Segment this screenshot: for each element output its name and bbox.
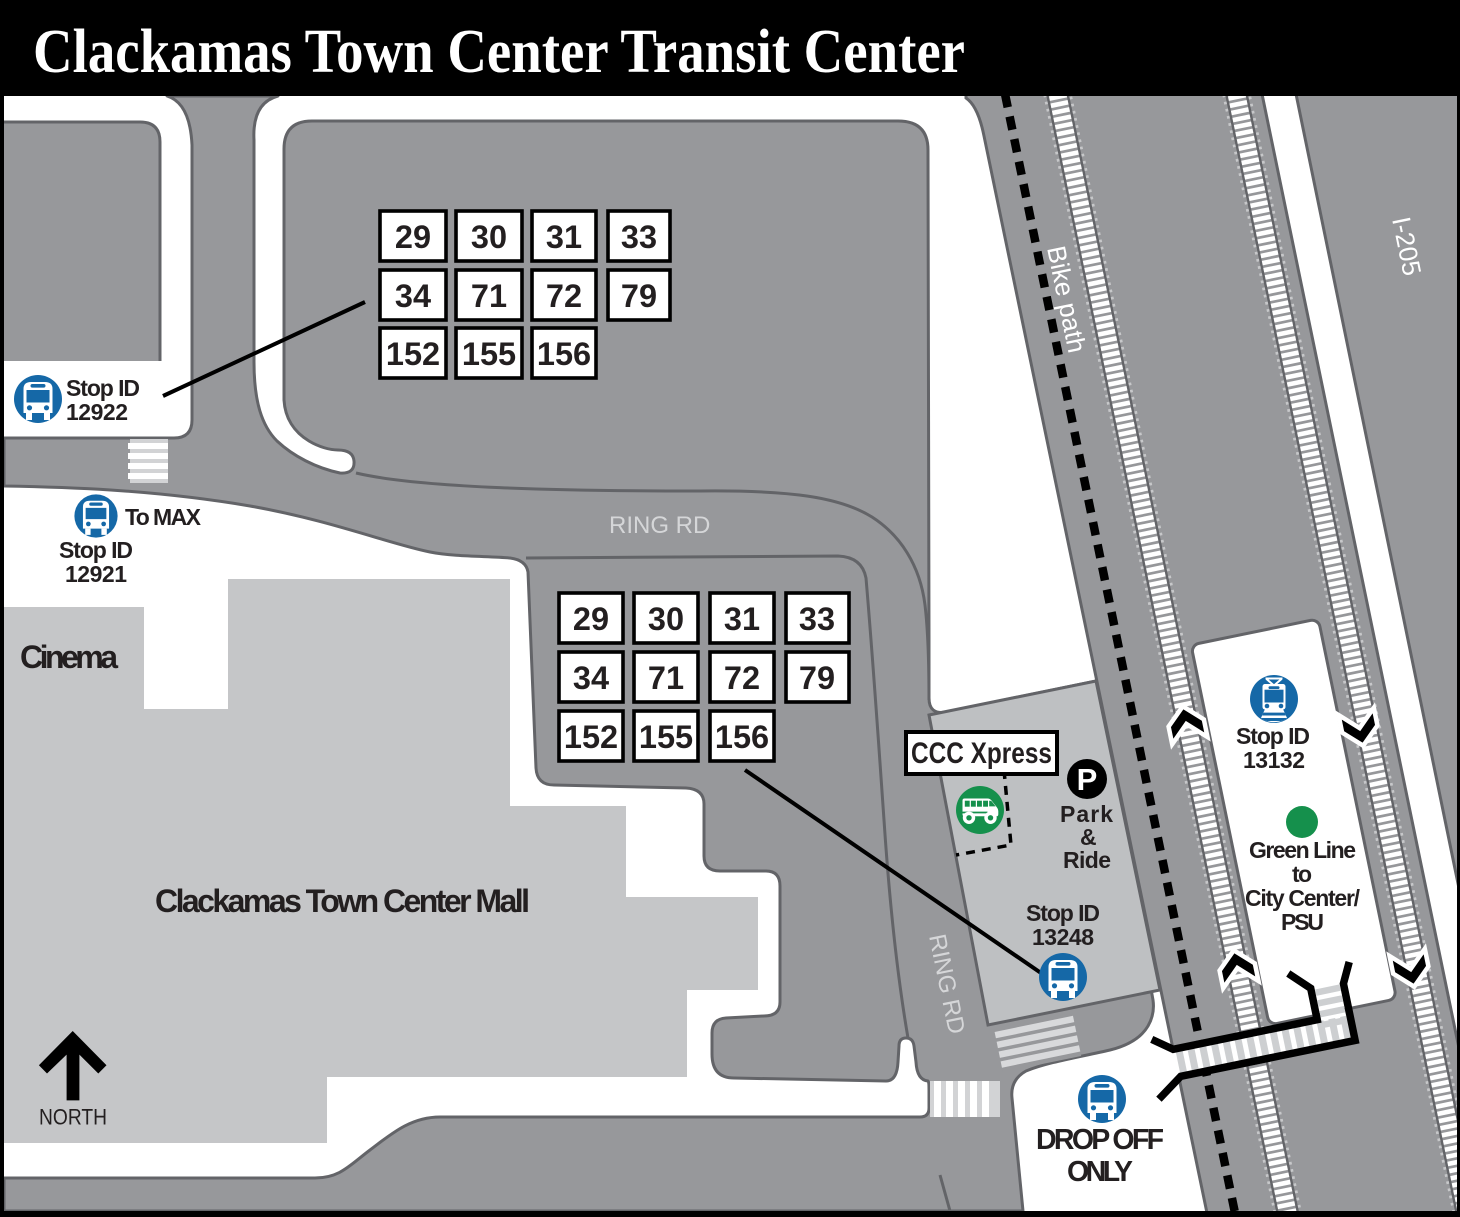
svg-text:30: 30 — [471, 219, 507, 255]
svg-text:12922: 12922 — [66, 399, 128, 425]
svg-text:Cinema: Cinema — [20, 639, 118, 675]
svg-text:Clackamas Town Center Transit: Clackamas Town Center Transit Center — [33, 18, 965, 86]
svg-text:71: 71 — [648, 660, 684, 696]
svg-text:156: 156 — [715, 719, 769, 755]
svg-text:156: 156 — [537, 336, 591, 372]
svg-text:City Center/: City Center/ — [1245, 885, 1361, 911]
svg-text:33: 33 — [621, 219, 657, 255]
svg-text:PSU: PSU — [1281, 909, 1324, 935]
svg-text:CCC Xpress: CCC Xpress — [911, 737, 1052, 770]
svg-text:Stop ID: Stop ID — [1026, 900, 1100, 926]
svg-text:ONLY: ONLY — [1067, 1156, 1133, 1188]
svg-text:Stop ID: Stop ID — [66, 375, 140, 401]
svg-text:79: 79 — [621, 278, 657, 314]
svg-text:DROP OFF: DROP OFF — [1036, 1124, 1164, 1156]
svg-text:Ride: Ride — [1063, 847, 1111, 873]
svg-text:72: 72 — [546, 278, 582, 314]
svg-text:155: 155 — [462, 336, 516, 372]
svg-text:30: 30 — [648, 601, 684, 637]
svg-text:Stop ID: Stop ID — [1236, 723, 1310, 749]
svg-text:12921: 12921 — [65, 561, 127, 587]
svg-text:Green Line: Green Line — [1249, 837, 1356, 863]
svg-text:31: 31 — [546, 219, 582, 255]
svg-text:P: P — [1077, 762, 1098, 797]
svg-text:Clackamas Town Center Mall: Clackamas Town Center Mall — [155, 883, 530, 919]
svg-text:152: 152 — [386, 336, 440, 372]
svg-text:to: to — [1292, 861, 1312, 887]
svg-text:29: 29 — [573, 601, 609, 637]
svg-text:79: 79 — [799, 660, 835, 696]
svg-text:71: 71 — [471, 278, 507, 314]
svg-text:29: 29 — [395, 219, 431, 255]
svg-text:34: 34 — [395, 278, 431, 314]
svg-text:Stop ID: Stop ID — [59, 537, 133, 563]
svg-text:NORTH: NORTH — [39, 1105, 107, 1130]
svg-text:72: 72 — [724, 660, 760, 696]
svg-text:13248: 13248 — [1032, 924, 1094, 950]
svg-text:155: 155 — [639, 719, 693, 755]
svg-text:33: 33 — [799, 601, 835, 637]
svg-text:152: 152 — [564, 719, 618, 755]
svg-text:31: 31 — [724, 601, 760, 637]
svg-text:To MAX: To MAX — [125, 504, 202, 530]
svg-text:13132: 13132 — [1243, 747, 1305, 773]
svg-text:34: 34 — [573, 660, 609, 696]
svg-text:RING RD: RING RD — [609, 512, 710, 539]
